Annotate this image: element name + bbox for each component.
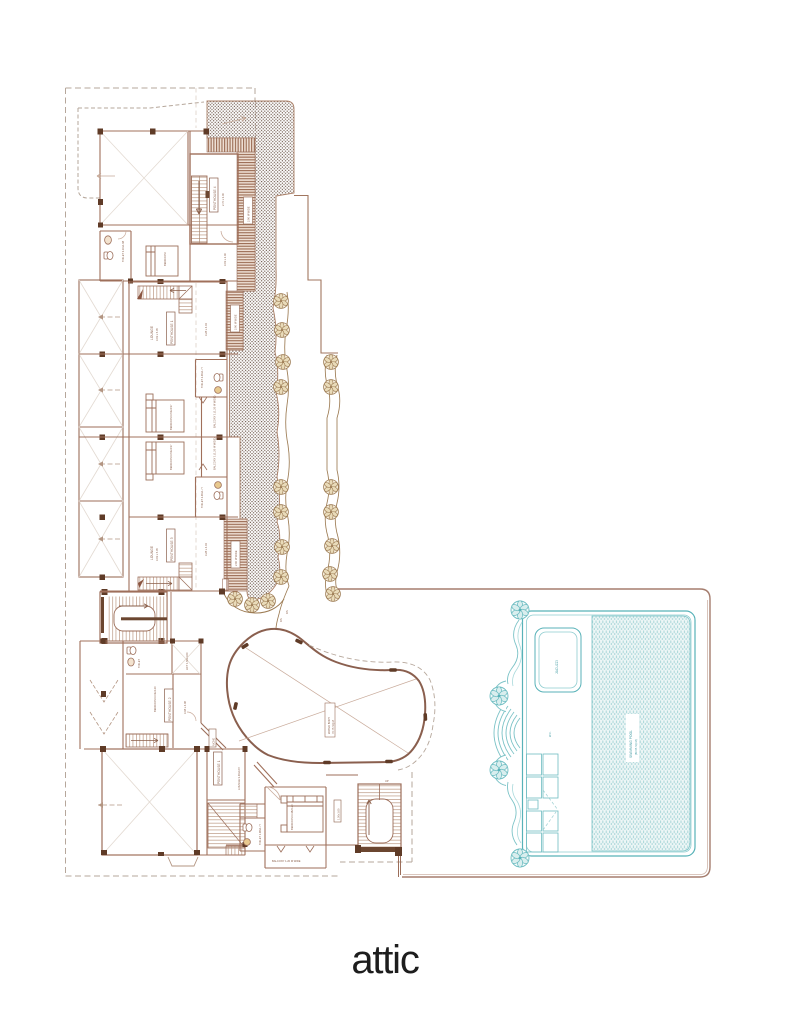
svg-text:BEDROOM 3.48x5.20: BEDROOM 3.48x5.20 [290,804,294,830]
svg-text:3.28 x 4.04: 3.28 x 4.04 [204,543,208,556]
svg-text:TOILET 2.46x1.77: TOILET 2.46x1.77 [200,486,204,508]
svg-text:2.90 M WIDE: 2.90 M WIDE [234,314,238,330]
svg-text:2.70 x 3.00: 2.70 x 3.00 [221,193,225,206]
svg-text:BALCONY 1.20 M WIDE: BALCONY 1.20 M WIDE [272,859,301,863]
svg-text:3.03 x 5.05: 3.03 x 5.05 [155,548,159,561]
svg-text:DN: DN [279,618,283,622]
svg-text:3.03 x 2.40: 3.03 x 2.40 [223,253,227,266]
svg-text:attic: attic [351,938,419,982]
svg-text:LOUNGE: LOUNGE [150,326,154,340]
svg-text:3.28 x 4.04: 3.28 x 4.04 [204,323,208,336]
svg-text:JACUZZI: JACUZZI [555,660,559,674]
svg-text:BEDROOM 3.53x4.97: BEDROOM 3.53x4.97 [169,404,173,430]
svg-text:3.03 x 5.05: 3.03 x 5.05 [155,328,159,341]
svg-text:W.C.: W.C. [548,731,552,737]
svg-text:BALCONY 1 (1.20 M WIDE): BALCONY 1 (1.20 M WIDE) [213,437,217,470]
svg-text:TOILET 2.46x1.77: TOILET 2.46x1.77 [200,366,204,388]
svg-text:WATER BODY: WATER BODY [327,717,331,734]
svg-text:3.08 x 4.08: 3.08 x 4.08 [183,701,187,714]
svg-text:BALCONY 1 (1.20 M WIDE): BALCONY 1 (1.20 M WIDE) [213,395,217,428]
svg-text:BEDROOM 3.19x4.20: BEDROOM 3.19x4.20 [153,686,157,712]
svg-text:PENTHOUSE 3: PENTHOUSE 3 [170,537,174,561]
svg-text:BEDROOM: BEDROOM [163,253,167,266]
svg-text:DN: DN [285,610,289,614]
svg-text:2.90 M WIDE: 2.90 M WIDE [247,206,251,222]
svg-text:PENTHOUSE 2: PENTHOUSE 2 [168,697,172,721]
svg-text:SWIMMING POOL: SWIMMING POOL [629,730,633,758]
svg-text:BEDROOM 3.53x4.97: BEDROOM 3.53x4.97 [169,444,173,470]
svg-text:2.90 M WIDE: 2.90 M WIDE [234,550,238,566]
svg-text:(60.55 SQ.M): (60.55 SQ.M) [634,739,638,755]
svg-text:PENTHOUSE 1: PENTHOUSE 1 [217,760,221,784]
svg-text:TOILET 3.10x1.98: TOILET 3.10x1.98 [121,240,125,262]
svg-text:NICHE: NICHE [212,738,216,746]
svg-text:1.50x1.60: 1.50x1.60 [337,808,341,820]
svg-text:UP: UP [385,779,389,783]
svg-text:PENTHOUSE 1: PENTHOUSE 1 [170,320,174,344]
svg-text:LOUNGE 3.49x4.97: LOUNGE 3.49x4.97 [237,766,241,790]
svg-text:70.75 SQ.M: 70.75 SQ.M [331,720,335,734]
svg-text:PENTHOUSE 4: PENTHOUSE 4 [213,186,217,210]
svg-text:TOILET: TOILET [137,659,141,668]
svg-text:TOILET 1.98x1.77: TOILET 1.98x1.77 [258,823,262,845]
svg-text:LOUNGE: LOUNGE [150,546,154,560]
svg-text:LIFT 1.50x1.60: LIFT 1.50x1.60 [185,652,189,670]
